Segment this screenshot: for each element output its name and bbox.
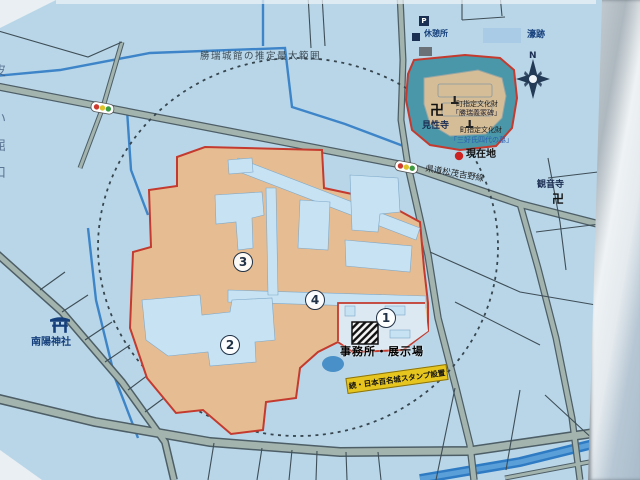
kannonji-temple-label: 観音寺 [537, 181, 564, 191]
manji-icon-kannonji: 卍 [552, 193, 564, 206]
current-location-dot [455, 152, 463, 160]
office-building-hatched [352, 322, 378, 344]
cultural-property-1-name: 「勝瑞義冢碑」 [452, 110, 501, 118]
cultural-property-2-title: 町指定文化財 [460, 127, 502, 135]
nanyo-shrine-label: 南陽神社 [31, 337, 71, 348]
site-marker-3: 3 [233, 252, 253, 272]
cultural-property-2-name: 「三好氏四代の墓」 [450, 137, 513, 145]
manji-icon-kenshoji: 卍 [430, 104, 444, 119]
moat-legend-swatch [483, 28, 521, 43]
sign-frame-top-edge [56, 0, 596, 4]
signboard-map: 勝瑞城館の推定最大範囲 P 休憩所 濠跡 N 卍 見性寺 町指定文化財 「勝瑞義… [0, 0, 640, 480]
site-marker-2: 2 [220, 335, 240, 355]
compass-north-label: N [529, 52, 537, 62]
compass-icon [516, 59, 550, 99]
parking-icon: P [419, 16, 429, 26]
edge-character: 皮 [0, 60, 6, 79]
map-graphics [0, 0, 640, 480]
site-marker-1: 1 [376, 308, 396, 328]
traffic-light-west [90, 101, 114, 115]
cultural-property-1-title: 町指定文化財 [456, 101, 498, 109]
current-location-label: 現在地 [466, 149, 496, 160]
torii-icon [50, 317, 70, 333]
edge-character: 屈 [0, 135, 6, 154]
toilet-icon [412, 33, 420, 41]
edge-character: 口 [0, 162, 6, 181]
site-marker-4: 4 [305, 290, 325, 310]
kenshoji-temple-label: 見性寺 [422, 122, 449, 132]
edge-character: い [0, 108, 6, 127]
traffic-light-east [394, 160, 418, 174]
moat-legend-label: 濠跡 [527, 31, 545, 41]
rest-house-icon [419, 47, 432, 56]
office-exhibition-label: 事務所・展示場 [340, 343, 424, 359]
estimated-range-label: 勝瑞城館の推定最大範囲 [200, 52, 321, 62]
rest-area-label: 休憩所 [424, 30, 448, 39]
